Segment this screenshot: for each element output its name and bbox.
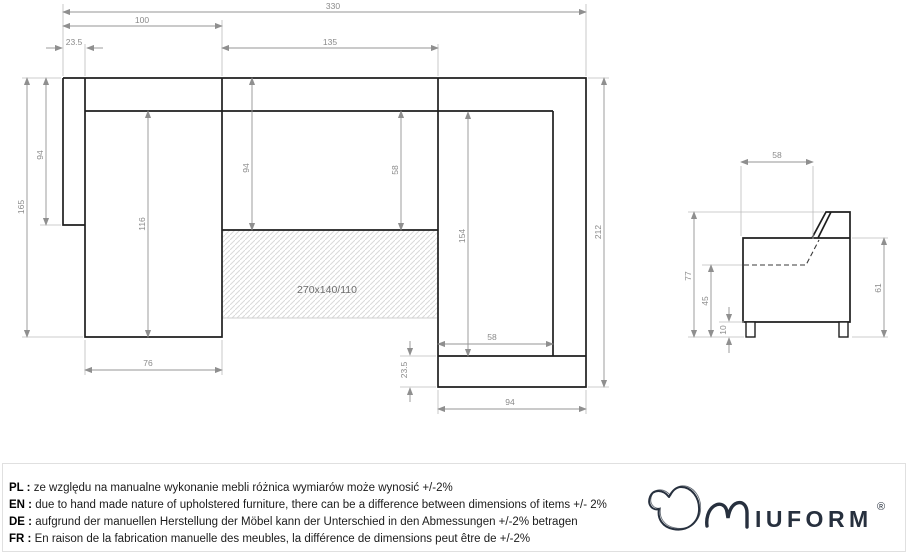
dim-label-left-section-width: 100 <box>135 15 149 25</box>
side-seat-dashed-line <box>744 240 819 265</box>
dim-label-middle-total-depth: 94 <box>241 163 251 173</box>
bean-icon <box>649 486 700 530</box>
technical-drawing: 330 100 23.5 135 165 94 116 94 58 154 58… <box>0 0 910 470</box>
dim-label-side-seat-depth: 58 <box>772 150 782 160</box>
note-pl-text: ze względu na manualne wykonanie mebli r… <box>34 482 453 494</box>
dim-label-side-total-height: 77 <box>683 271 693 281</box>
dim-label-chaise-length: 116 <box>137 217 147 231</box>
miuform-logo: IUFORM ® <box>645 475 905 555</box>
note-pl-code: PL : <box>9 482 31 494</box>
side-body-outline <box>743 212 850 322</box>
dim-label-right-section-width: 94 <box>505 397 515 407</box>
dim-label-right-seat-length: 154 <box>457 229 467 243</box>
note-de: DE : aufgrund der manuellen Herstellung … <box>9 516 578 528</box>
note-pl: PL : ze względu na manualne wykonanie me… <box>9 482 453 494</box>
dim-label-side-seat-height: 45 <box>700 296 710 306</box>
dim-label-left-arm-depth: 94 <box>35 150 45 160</box>
dim-label-left-arm-width: 23.5 <box>66 37 83 47</box>
side-view: 58 77 45 10 61 <box>683 150 888 353</box>
dim-label-middle-seat-width: 135 <box>323 37 337 47</box>
dim-label-chaise-seat-width: 76 <box>143 358 153 368</box>
note-de-text: aufgrund der manuellen Herstellung der M… <box>35 516 577 528</box>
spec-sheet: 330 100 23.5 135 165 94 116 94 58 154 58… <box>0 0 910 560</box>
dim-label-right-bottom-band: 23.5 <box>399 361 409 378</box>
dim-label-left-total-depth: 165 <box>16 200 26 214</box>
dim-label-middle-seat-depth: 58 <box>390 165 400 175</box>
bed-area-hatch <box>222 230 438 318</box>
logo-m-glyph <box>707 503 747 527</box>
note-fr-text: En raison de la fabrication manuelle des… <box>35 533 531 545</box>
plan-view: 330 100 23.5 135 165 94 116 94 58 154 58… <box>16 1 609 414</box>
note-fr: FR : En raison de la fabrication manuell… <box>9 533 530 545</box>
side-back-leg <box>839 322 848 337</box>
dim-label-side-leg-height: 10 <box>718 325 728 335</box>
dim-label-overall-width: 330 <box>326 1 340 11</box>
note-en: EN : due to hand made nature of upholste… <box>9 499 607 511</box>
dim-label-overall-depth: 212 <box>593 225 603 239</box>
extension-lines-side <box>688 166 888 337</box>
dim-label-right-seat-width: 58 <box>487 332 497 342</box>
registered-trademark-icon: ® <box>877 501 885 513</box>
note-fr-code: FR : <box>9 533 31 545</box>
extension-lines-plan <box>22 4 609 414</box>
logo-wordmark: IUFORM <box>755 506 873 532</box>
note-en-code: EN : <box>9 499 32 511</box>
bed-size-label: 270x140/110 <box>297 284 357 296</box>
note-en-text: due to hand made nature of upholstered f… <box>35 499 607 511</box>
dim-label-side-arm-height: 61 <box>873 283 883 293</box>
side-front-leg <box>746 322 755 337</box>
note-de-code: DE : <box>9 516 32 528</box>
